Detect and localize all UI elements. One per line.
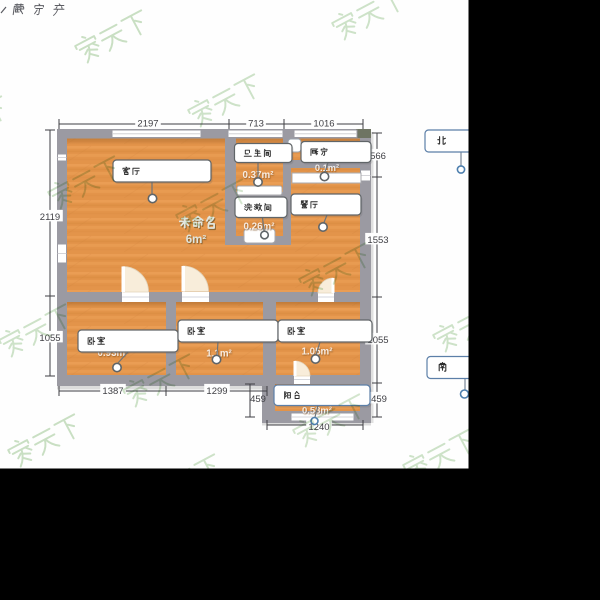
svg-text:459: 459 [250, 394, 266, 405]
svg-text:1299: 1299 [206, 386, 227, 397]
svg-text:2119: 2119 [40, 212, 60, 223]
svg-text:1387: 1387 [102, 386, 123, 397]
svg-text:0.26m²: 0.26m² [243, 222, 275, 233]
svg-text:713: 713 [248, 119, 264, 130]
svg-text:1016: 1016 [313, 119, 334, 130]
svg-text:6m²: 6m² [186, 234, 207, 246]
svg-text:459: 459 [371, 394, 387, 405]
svg-text:1553: 1553 [367, 235, 388, 246]
svg-text:2197: 2197 [137, 119, 158, 130]
